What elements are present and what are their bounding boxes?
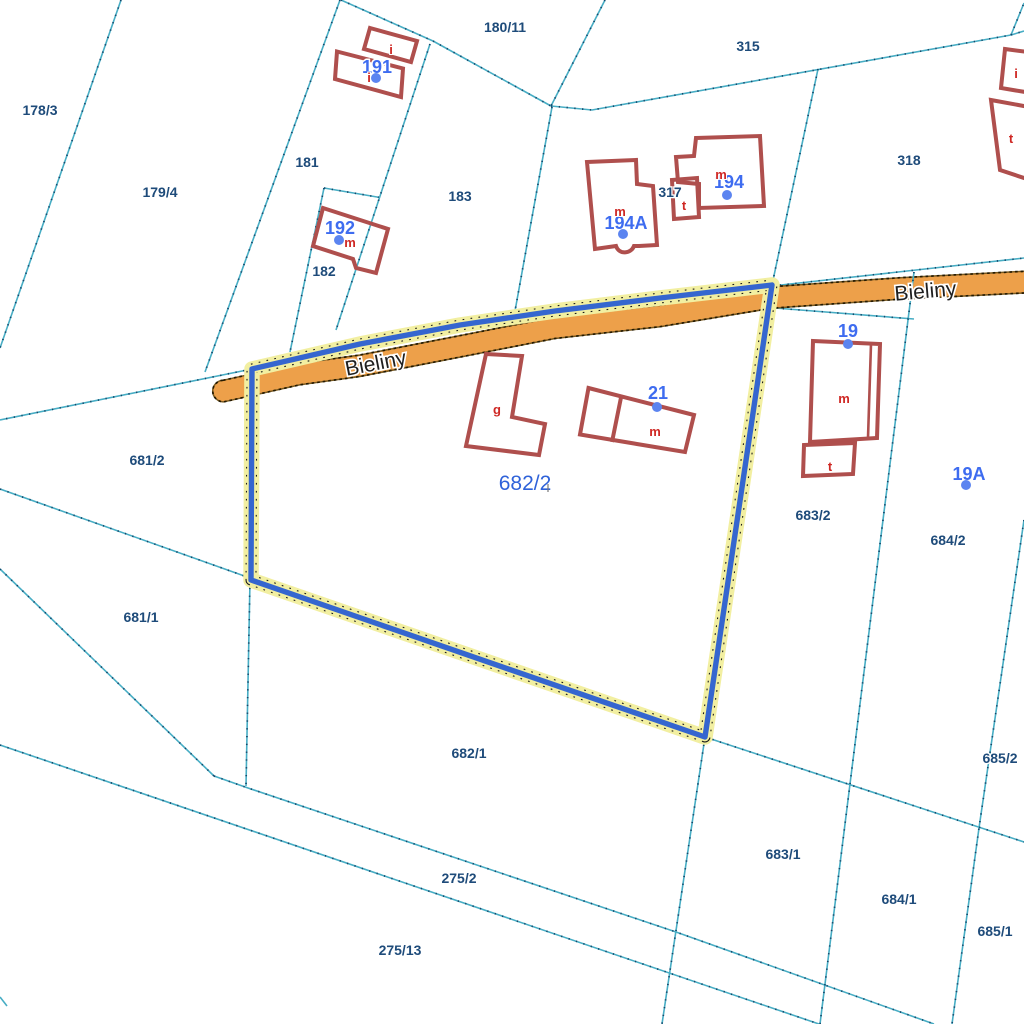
- svg-text:t: t: [828, 459, 833, 474]
- svg-text:t: t: [1009, 131, 1014, 146]
- svg-text:275/13: 275/13: [379, 942, 422, 958]
- svg-text:682/1: 682/1: [451, 745, 486, 761]
- svg-text:275/2: 275/2: [441, 870, 476, 886]
- svg-text:m: m: [344, 235, 356, 250]
- svg-text:t: t: [682, 198, 687, 213]
- svg-text:683/2: 683/2: [795, 507, 830, 523]
- svg-text:194A: 194A: [604, 213, 647, 233]
- svg-text:183: 183: [448, 188, 472, 204]
- svg-text:i: i: [367, 70, 371, 85]
- svg-text:m: m: [649, 424, 661, 439]
- svg-text:19: 19: [838, 321, 858, 341]
- svg-text:681/1: 681/1: [123, 609, 158, 625]
- svg-text:i: i: [1014, 66, 1018, 81]
- svg-text:178/3: 178/3: [22, 102, 57, 118]
- svg-text:684/1: 684/1: [881, 891, 916, 907]
- svg-text:318: 318: [897, 152, 921, 168]
- svg-text:m: m: [614, 204, 626, 219]
- svg-text:681/2: 681/2: [129, 452, 164, 468]
- svg-text:179/4: 179/4: [142, 184, 177, 200]
- svg-text:317: 317: [658, 184, 682, 200]
- svg-text:m: m: [838, 391, 850, 406]
- svg-text:685/2: 685/2: [982, 750, 1017, 766]
- svg-text:m: m: [715, 167, 727, 182]
- svg-text:181: 181: [295, 154, 319, 170]
- svg-text:182: 182: [312, 263, 336, 279]
- svg-text:i: i: [389, 42, 393, 57]
- svg-text:684/2: 684/2: [930, 532, 965, 548]
- svg-text:682/2: 682/2: [499, 472, 552, 495]
- svg-text:685/1: 685/1: [977, 923, 1012, 939]
- svg-text:315: 315: [736, 38, 760, 54]
- svg-text:683/1: 683/1: [765, 846, 800, 862]
- svg-text:g: g: [493, 402, 501, 417]
- svg-text:21: 21: [648, 383, 668, 403]
- svg-text:180/11: 180/11: [484, 19, 526, 35]
